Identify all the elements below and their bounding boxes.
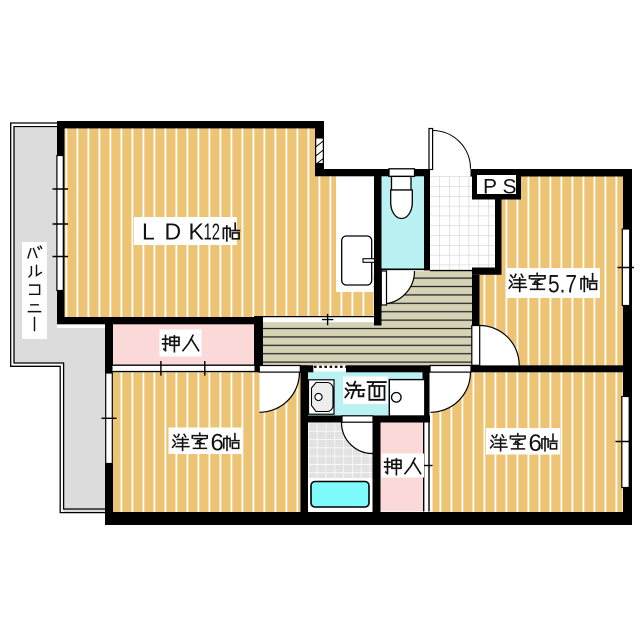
svg-text:D: D	[165, 219, 182, 245]
svg-text:P: P	[483, 176, 497, 199]
svg-text:5.7: 5.7	[548, 271, 577, 299]
svg-text:6: 6	[211, 430, 224, 457]
svg-text:L: L	[142, 219, 155, 245]
svg-text:K: K	[189, 219, 205, 245]
svg-text:12: 12	[204, 219, 221, 245]
svg-text:S: S	[503, 176, 517, 199]
svg-text:6: 6	[529, 430, 542, 457]
